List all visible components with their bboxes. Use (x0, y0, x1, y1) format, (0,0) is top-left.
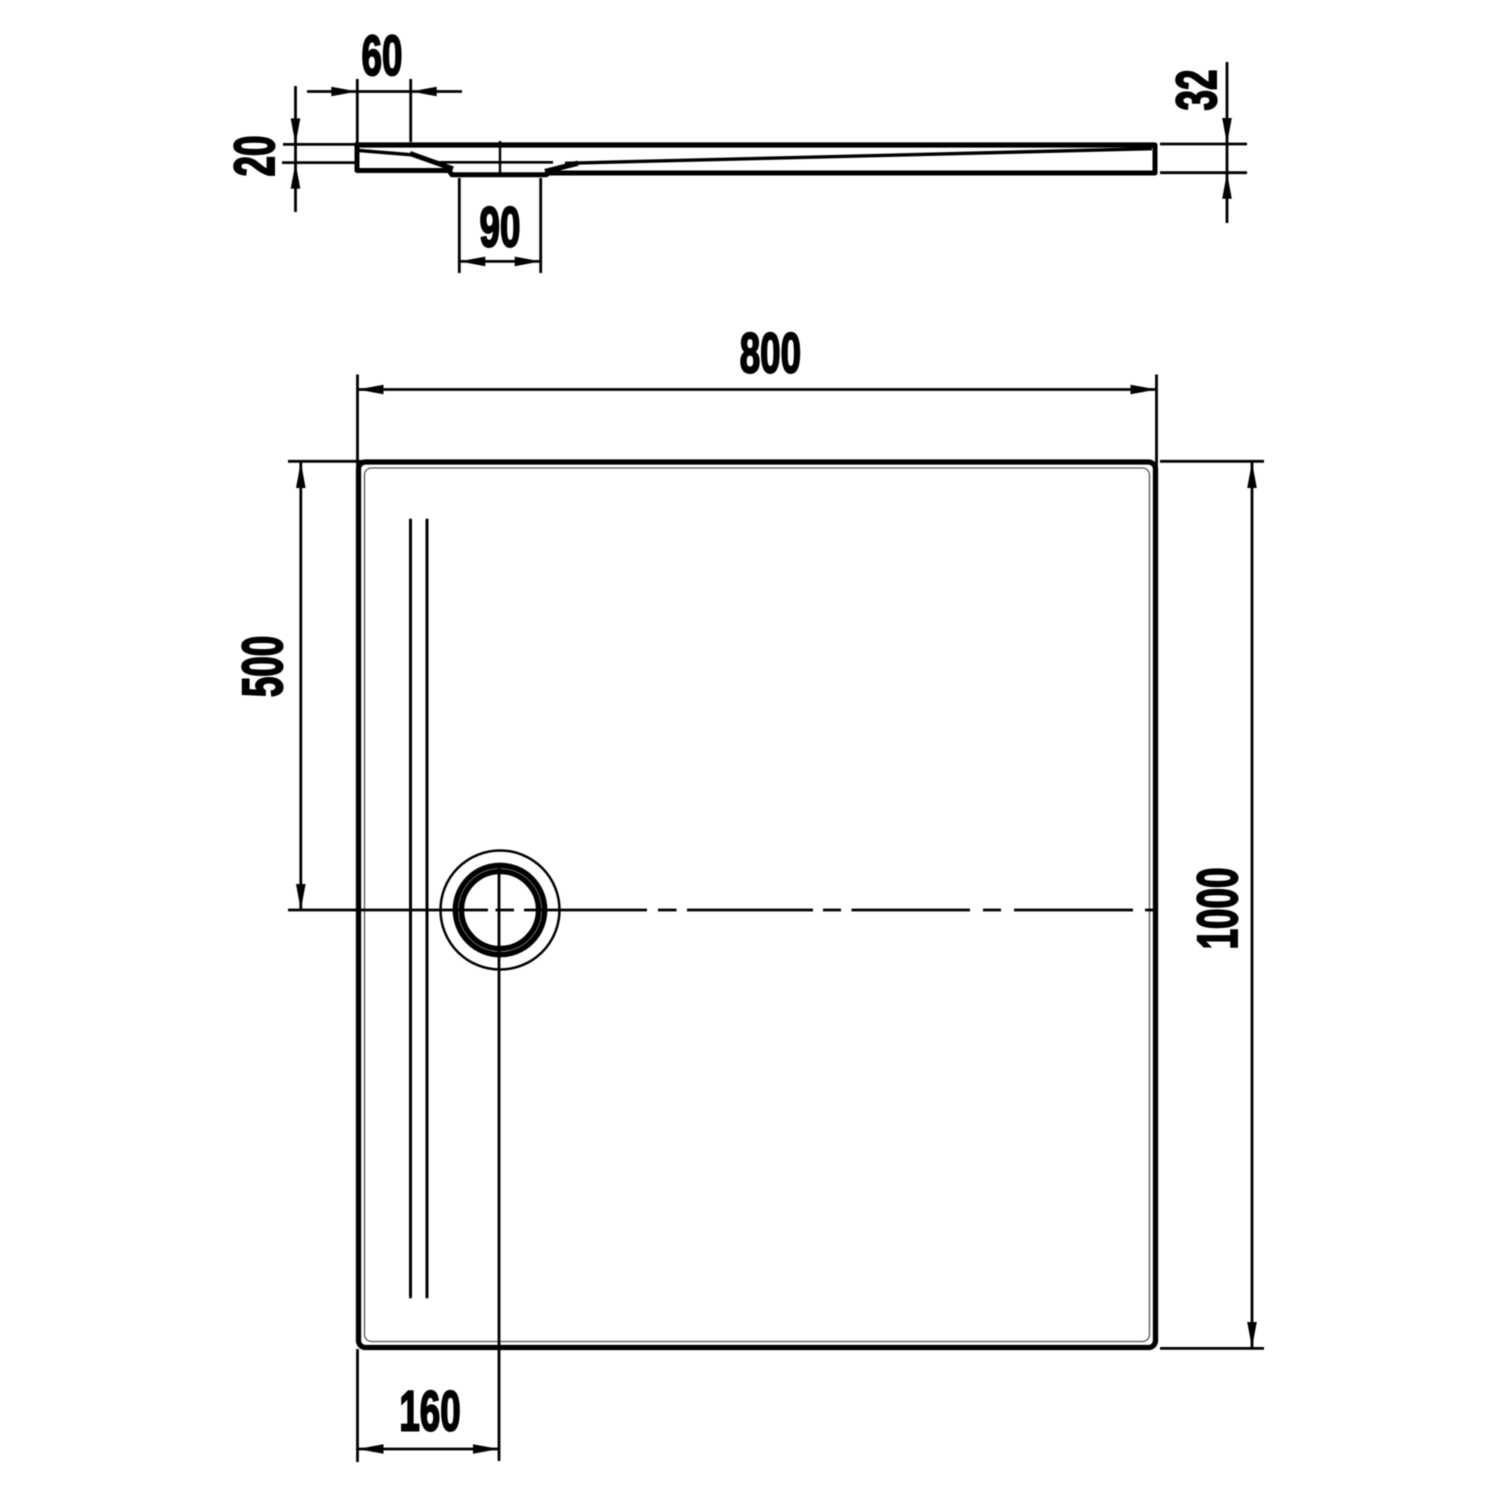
svg-text:60: 60 (362, 24, 403, 88)
svg-text:800: 800 (740, 321, 801, 385)
svg-text:500: 500 (231, 636, 295, 697)
svg-text:160: 160 (399, 1379, 460, 1443)
svg-text:32: 32 (1165, 70, 1229, 111)
svg-text:90: 90 (480, 195, 521, 259)
svg-text:1000: 1000 (1186, 868, 1250, 950)
svg-text:20: 20 (223, 136, 287, 177)
